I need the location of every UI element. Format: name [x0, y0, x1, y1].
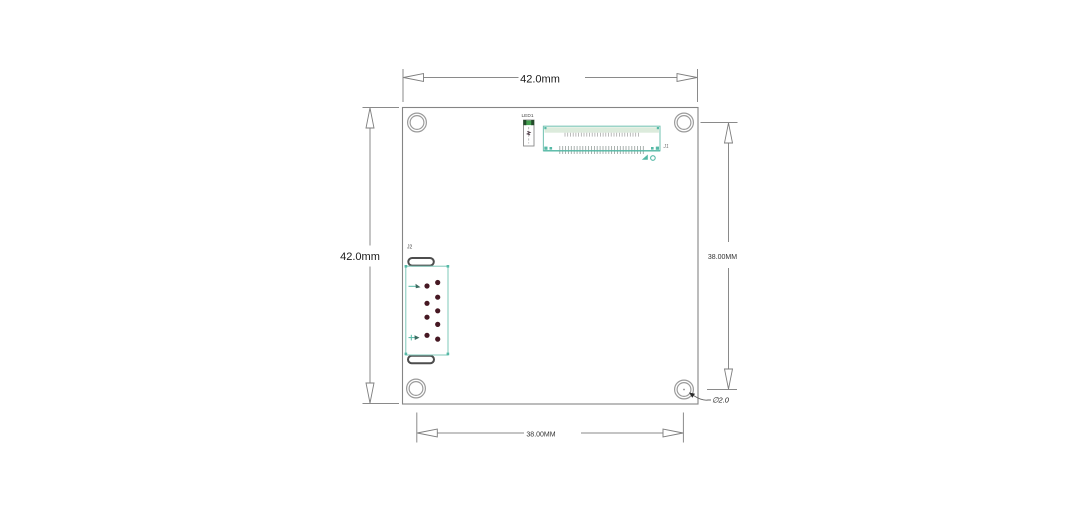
svg-text:38.00MM: 38.00MM: [526, 431, 555, 438]
svg-text:J1: J1: [663, 144, 670, 150]
svg-text:42.0mm: 42.0mm: [340, 251, 380, 263]
svg-text:J2: J2: [407, 245, 413, 251]
svg-text:∅2.0: ∅2.0: [712, 396, 730, 405]
svg-text:42.0mm: 42.0mm: [520, 74, 560, 86]
svg-text:38.00MM: 38.00MM: [708, 254, 737, 261]
svg-text:LED1: LED1: [522, 113, 534, 119]
